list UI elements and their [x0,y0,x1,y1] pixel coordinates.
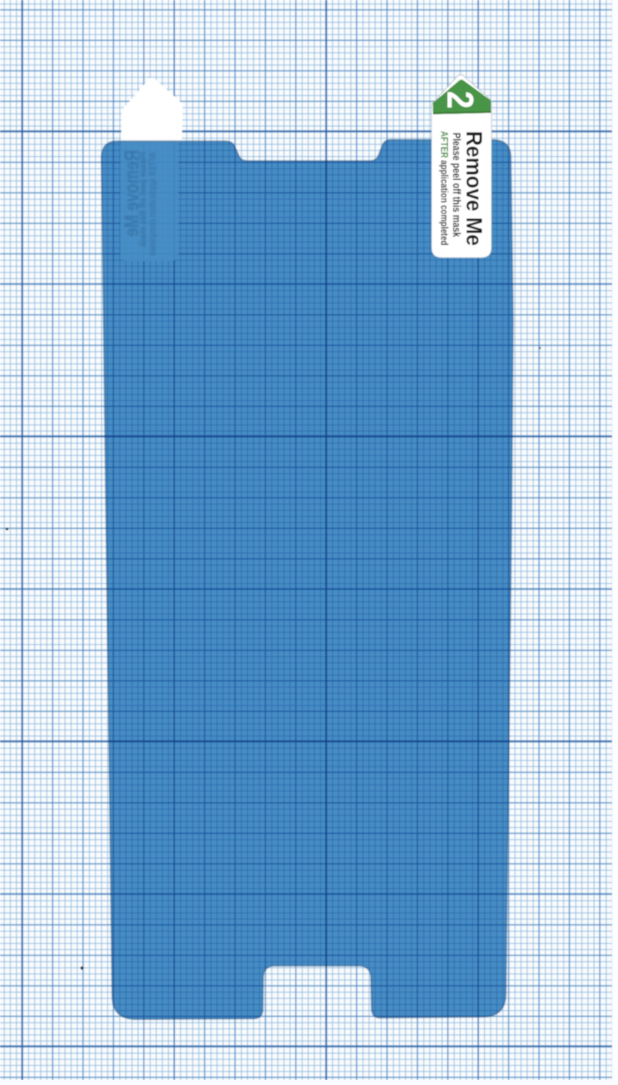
svg-text:Please peel off this mask: Please peel off this mask [450,133,462,238]
svg-text:AFTER application completed: AFTER application completed [439,131,450,246]
svg-text:Remove Me: Remove Me [461,131,486,246]
svg-text:2: 2 [439,91,481,109]
